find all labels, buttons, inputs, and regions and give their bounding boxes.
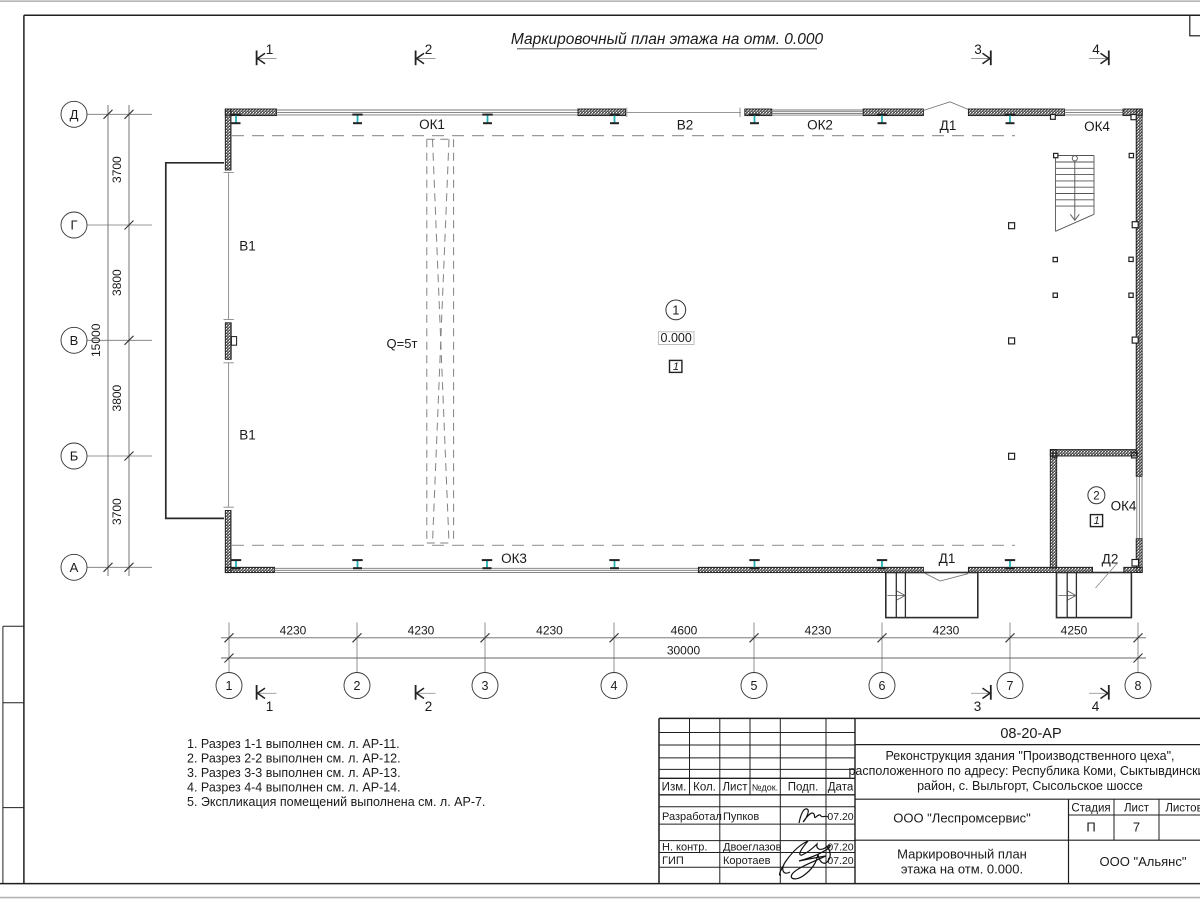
svg-text:30000: 30000 (667, 644, 701, 658)
svg-text:1: 1 (266, 42, 274, 57)
svg-text:Лист: Лист (723, 782, 749, 794)
svg-text:Д: Д (70, 107, 79, 122)
svg-text:Реконструкция здания "Производ: Реконструкция здания "Производственного … (886, 749, 1175, 763)
svg-text:6: 6 (879, 679, 886, 693)
svg-text:В1: В1 (239, 239, 256, 254)
svg-text:3: 3 (974, 42, 982, 57)
svg-text:Стадия: Стадия (1071, 802, 1110, 814)
svg-text:3: 3 (974, 699, 982, 714)
svg-text:4: 4 (1092, 699, 1100, 714)
svg-text:2: 2 (425, 42, 433, 57)
svg-text:4: 4 (611, 679, 618, 693)
svg-text:Листов: Листов (1165, 802, 1200, 814)
svg-text:4230: 4230 (536, 623, 563, 637)
svg-text:4230: 4230 (408, 623, 435, 637)
svg-text:Лист: Лист (1124, 802, 1150, 814)
svg-text:1: 1 (672, 303, 679, 317)
svg-text:Подп.: Подп. (788, 782, 819, 794)
svg-text:7: 7 (1133, 820, 1140, 835)
svg-text:Двоеглазов: Двоеглазов (723, 841, 782, 853)
svg-text:В: В (70, 333, 79, 348)
svg-text:Д2: Д2 (1102, 551, 1119, 566)
svg-text:№док.: №док. (752, 783, 778, 793)
svg-text:В2: В2 (677, 117, 694, 132)
svg-text:ОК4: ОК4 (1111, 499, 1137, 514)
svg-text:07.20: 07.20 (827, 811, 853, 823)
svg-text:15000: 15000 (89, 323, 103, 357)
svg-text:07.20: 07.20 (827, 841, 853, 853)
svg-text:В1: В1 (239, 428, 256, 443)
svg-text:Коротаев: Коротаев (723, 855, 771, 867)
svg-text:3: 3 (482, 679, 489, 693)
svg-text:2: 2 (354, 679, 361, 693)
svg-text:5: 5 (751, 679, 758, 693)
svg-text:4230: 4230 (933, 623, 960, 637)
svg-text:1: 1 (673, 361, 679, 373)
svg-text:Разработал: Разработал (662, 811, 722, 823)
svg-text:ООО "Леспромсервис": ООО "Леспромсервис" (893, 811, 1031, 826)
svg-text:П: П (1086, 820, 1095, 835)
svg-text:Г: Г (70, 218, 77, 233)
svg-text:Маркировочный план этажа на от: Маркировочный план этажа на отм. 0.000 (511, 31, 824, 48)
svg-text:3. Разрез 3-3 выполнен см. л.: 3. Разрез 3-3 выполнен см. л. АР-13. (187, 766, 401, 780)
svg-text:3800: 3800 (110, 269, 124, 296)
svg-text:07.20: 07.20 (827, 855, 853, 867)
svg-text:2. Разрез 2-2 выполнен см. л.: 2. Разрез 2-2 выполнен см. л. АР-12. (187, 752, 401, 766)
svg-text:Д1: Д1 (939, 551, 956, 566)
svg-text:4. Разрез 4-4 выполнен см. л.: 4. Разрез 4-4 выполнен см. л. АР-14. (187, 780, 401, 794)
svg-text:Кол.: Кол. (693, 782, 716, 794)
svg-text:1: 1 (226, 679, 233, 693)
svg-text:1: 1 (1094, 515, 1100, 527)
svg-text:08-20-АР: 08-20-АР (1000, 726, 1061, 742)
svg-text:3800: 3800 (110, 384, 124, 411)
svg-text:5. Экспликация помещений выпол: 5. Экспликация помещений выполнена см. л… (187, 795, 485, 809)
svg-text:7: 7 (1007, 679, 1014, 693)
svg-text:2: 2 (425, 699, 433, 714)
svg-text:0.000: 0.000 (661, 331, 692, 345)
svg-text:Пупков: Пупков (723, 811, 759, 823)
svg-text:Д1: Д1 (940, 118, 957, 133)
svg-text:3700: 3700 (110, 156, 124, 183)
svg-text:А: А (70, 560, 79, 575)
svg-text:ОК2: ОК2 (807, 117, 833, 132)
svg-text:Q=5т: Q=5т (387, 336, 418, 351)
svg-text:4250: 4250 (1061, 623, 1088, 637)
svg-text:1. Разрез 1-1 выполнен см. л.: 1. Разрез 1-1 выполнен см. л. АР-11. (187, 737, 400, 751)
svg-text:4230: 4230 (805, 623, 832, 637)
svg-text:4: 4 (1092, 42, 1100, 57)
svg-text:ОК1: ОК1 (419, 117, 445, 132)
svg-text:3700: 3700 (110, 498, 124, 525)
svg-text:ОК4: ОК4 (1084, 119, 1110, 134)
svg-text:1: 1 (266, 699, 274, 714)
svg-text:4600: 4600 (671, 623, 698, 637)
svg-text:8: 8 (1135, 679, 1142, 693)
svg-text:Н. контр.: Н. контр. (662, 841, 707, 853)
svg-text:4230: 4230 (280, 623, 307, 637)
svg-text:ОК3: ОК3 (501, 551, 527, 566)
svg-text:район, с. Выльгорт, Сысольское: район, с. Выльгорт, Сысольское шоссе (917, 779, 1143, 793)
svg-text:Б: Б (70, 449, 79, 464)
svg-text:Дата: Дата (828, 782, 854, 794)
svg-text:этажа на отм. 0.000.: этажа на отм. 0.000. (901, 862, 1023, 877)
svg-text:Маркировочный план: Маркировочный план (897, 847, 1027, 862)
svg-text:Изм.: Изм. (662, 782, 687, 794)
svg-text:расположенного по адресу: Респ: расположенного по адресу: Республика Ком… (848, 764, 1200, 778)
svg-text:2: 2 (1093, 490, 1099, 502)
svg-text:ГИП: ГИП (662, 855, 684, 867)
svg-text:ООО "Альянс": ООО "Альянс" (1100, 854, 1187, 869)
